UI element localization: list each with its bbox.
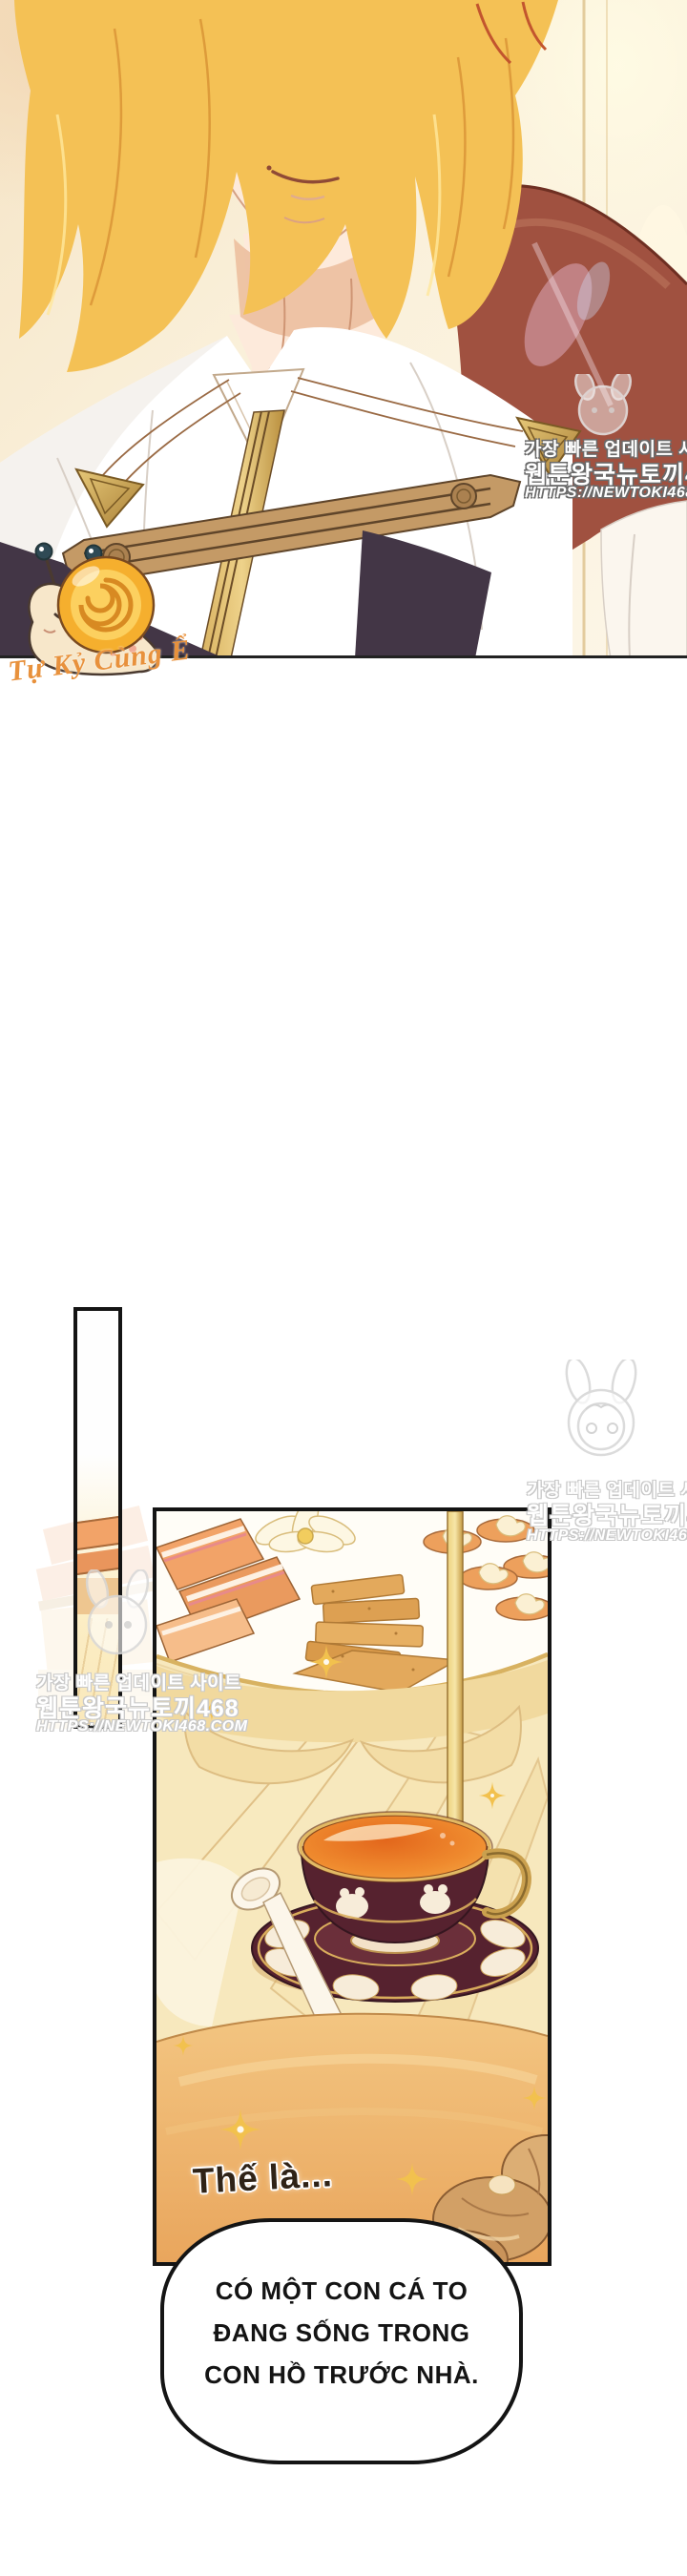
watermark-chibi-girl-icon — [531, 1360, 674, 1474]
watermark-line-3: HTTPS://NEWTOKI468.COM — [36, 1718, 247, 1735]
site-watermark-left: 가장 빠른 업데이트 사이트 웹툰왕국뉴토끼468 HTTPS://NEWTOK… — [34, 1569, 225, 1736]
speech-bubble: CÓ MỘT CON CÁ TO ĐANG SỐNG TRONG CON HỒ … — [160, 2218, 523, 2464]
watermark-line-3: HTTPS://NEWTOKI468.COM — [525, 485, 687, 502]
site-watermark-top: 가장 빠른 업데이트 사이트 웹툰왕국뉴토끼468 HTTPS://NEWTOK… — [523, 374, 687, 503]
watermark-chibi-icon — [552, 374, 656, 437]
speech-line-3: CON HỒ TRƯỚC NHÀ. — [204, 2354, 479, 2396]
site-watermark-middle: 가장 빠른 업데이트 사이트 웹툰왕국뉴토끼468 HTTPS://NEWTOK… — [525, 1360, 687, 1546]
narration-caption: Thế là... — [192, 2154, 334, 2202]
translator-logo: Tự Kỷ Cùng Ể — [6, 527, 187, 717]
watermark-line-3: HTTPS://NEWTOKI468.COM — [527, 1527, 687, 1545]
watermark-chibi-icon — [55, 1569, 179, 1670]
speech-line-1: CÓ MỘT CON CÁ TO — [216, 2270, 468, 2312]
watermark-line-2: 웹툰왕국뉴토끼468 — [527, 1497, 687, 1531]
napkin — [156, 1859, 244, 2026]
sleeve-fold — [601, 501, 687, 658]
comic-page: 가장 빠른 업데이트 사이트 웹툰왕국뉴토끼468 HTTPS://NEWTOK… — [0, 0, 687, 2576]
speech-line-2: ĐANG SỐNG TRONG — [214, 2312, 470, 2354]
